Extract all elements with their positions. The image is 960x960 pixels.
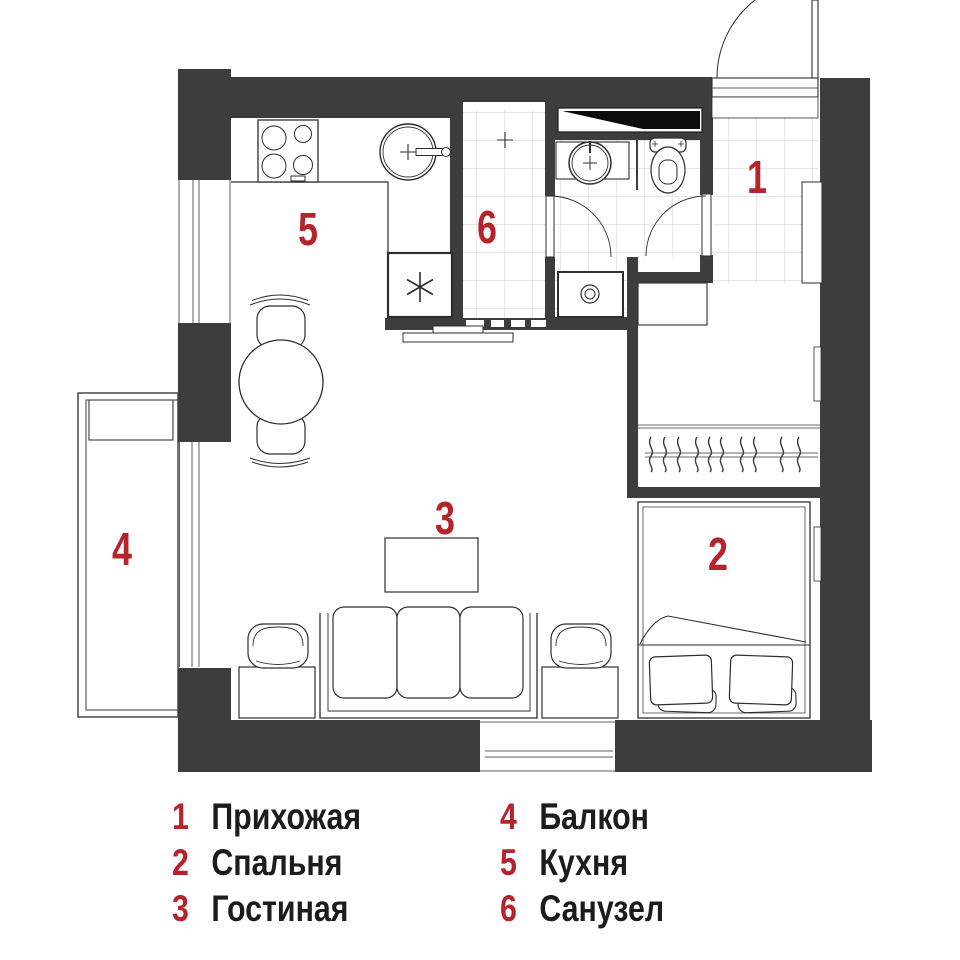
bathroom-sink-icon (556, 141, 629, 184)
room-marker-kitchen: 5 (298, 206, 318, 252)
room-marker-bedroom: 2 (708, 531, 728, 577)
legend-item-number: 2 (172, 843, 205, 883)
legend-item-number: 4 (500, 797, 533, 837)
wardrobe-hangers-icon (638, 425, 820, 472)
legend-item: 1 Прихожая (172, 797, 361, 843)
room-marker-living-room: 3 (435, 495, 455, 541)
legend-item-number: 3 (172, 889, 205, 929)
hallway-cabinet (638, 283, 707, 325)
balcony-bench-icon (89, 400, 173, 440)
pillow-icon (649, 655, 716, 713)
legend-column-right: 4 Балкон 5 Кухня 6 Санузел (500, 797, 700, 935)
stove-icon (258, 120, 318, 182)
dining-table-icon (239, 340, 323, 424)
washing-machine-icon (558, 272, 623, 317)
legend-item: 6 Санузел (500, 889, 664, 935)
legend-item: 2 Спальня (172, 843, 361, 889)
kitchen-sink-icon (380, 124, 451, 180)
side-table-icon (239, 667, 315, 718)
legend-item-label: Санузел (539, 889, 664, 929)
floor-plan-drawing (0, 0, 960, 785)
room-marker-balcony: 4 (112, 526, 132, 572)
kitchen-counter (231, 182, 450, 253)
entry-door-icon (712, 0, 818, 118)
legend-item-label: Балкон (539, 797, 649, 837)
legend-item-number: 6 (500, 889, 533, 929)
legend-item: 3 Гостиная (172, 889, 361, 935)
toilet-icon (650, 138, 686, 193)
floor-plan-image: 1 2 3 4 5 6 1 Прихожая 2 Спальня 3 Гости… (0, 0, 960, 960)
legend-item-label: Прихожая (211, 797, 361, 837)
pouf-icon (551, 624, 611, 668)
coffee-table-icon (385, 538, 478, 592)
legend-item-label: Гостиная (211, 889, 348, 929)
legend-item-label: Кухня (539, 843, 628, 883)
pillow-icon (729, 655, 796, 713)
hallway-console (802, 182, 822, 283)
wall-niche (814, 347, 821, 401)
legend-item-number: 1 (172, 797, 205, 837)
kitchen-fixtures (231, 120, 452, 467)
legend-item-number: 5 (500, 843, 533, 883)
room-marker-bathroom: 6 (477, 204, 497, 250)
room-marker-hallway: 1 (747, 154, 767, 200)
vent-shaft-icon (558, 108, 702, 132)
legend-item: 5 Кухня (500, 843, 664, 889)
living-room-furniture (239, 538, 618, 718)
legend-item-label: Спальня (211, 843, 342, 883)
legend-item: 4 Балкон (500, 797, 664, 843)
pouf-icon (248, 624, 308, 668)
legend-column-left: 1 Прихожая 2 Спальня 3 Гостиная (172, 797, 403, 935)
sofa-icon (320, 607, 537, 718)
refrigerator-icon (388, 253, 452, 317)
dining-set (239, 295, 323, 467)
side-table-icon (542, 667, 618, 718)
wall-niche (814, 527, 821, 581)
